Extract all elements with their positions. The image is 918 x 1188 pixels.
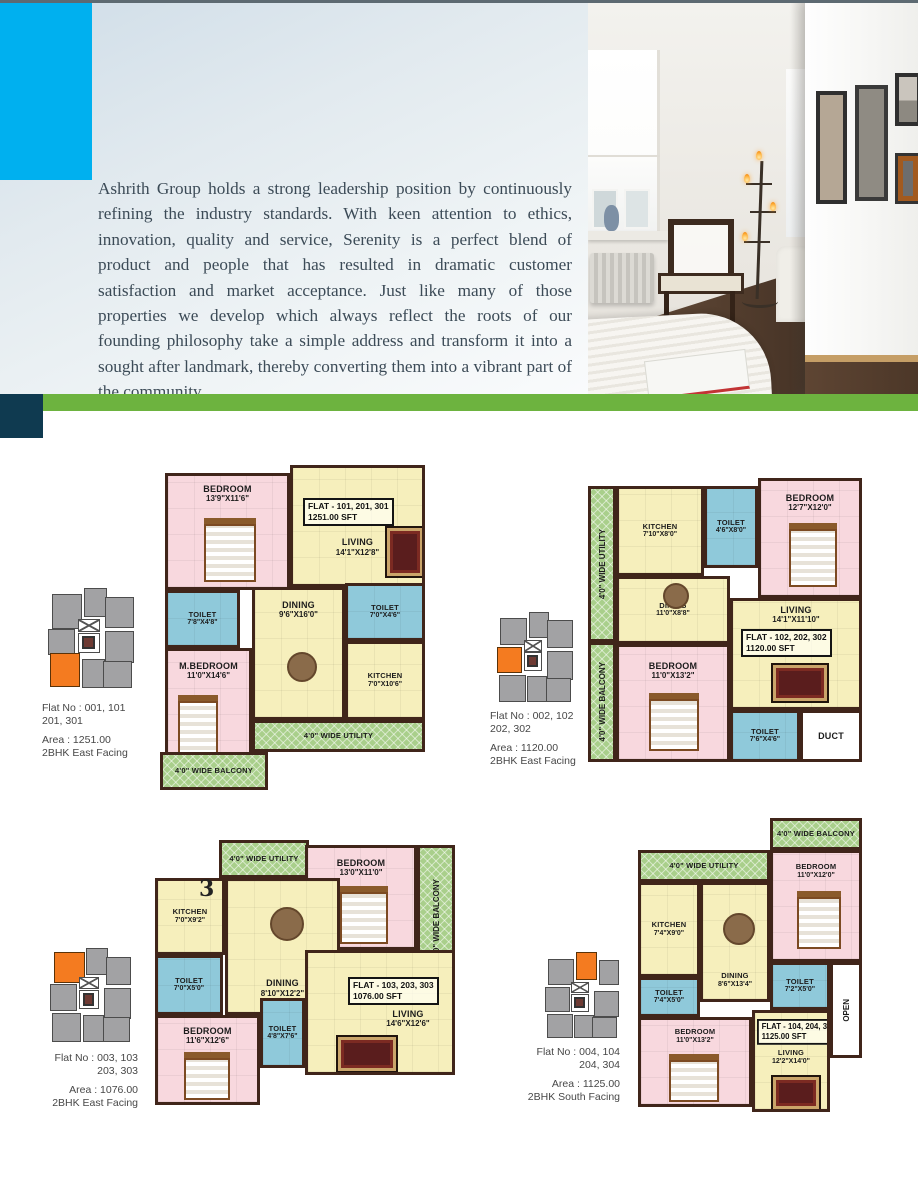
keyplan-flat-103	[45, 948, 135, 1044]
floorplan-flat-101: BEDROOM 13'9"X11'6" FLAT - 101, 201, 301…	[160, 465, 425, 790]
flat-no: 202, 302	[490, 723, 610, 736]
flat-no: 201, 301	[42, 715, 172, 728]
keyplan-flat-104	[540, 952, 622, 1040]
room-toilet: TOILET 7'8"X4'8"	[165, 590, 240, 648]
floorplan-flat-102: 4'0" WIDE UTILITY KITCHEN 7'10"X8'0" TOI…	[588, 478, 862, 762]
flat-facing: 2BHK South Facing	[510, 1091, 620, 1104]
room-toilet: TOILET 4'6"X8'0"	[704, 486, 758, 568]
room-toilet: TOILET 7'6"X4'6"	[730, 710, 800, 762]
floorplan-flat-104: 4'0" WIDE BALCONY 4'0" WIDE UTILITY BEDR…	[632, 818, 862, 1112]
room-balcony: 4'0" WIDE BALCONY	[160, 752, 268, 790]
flat-no: Flat No : 003, 103	[28, 1052, 138, 1065]
room-kitchen: KITCHEN 7'0"X10'6"	[345, 641, 425, 720]
room-dining: DINING 11'0"X8'8"	[616, 576, 730, 644]
room-open: OPEN	[830, 962, 862, 1058]
photo-candle-arm	[746, 183, 772, 185]
cyan-accent-block	[0, 3, 92, 180]
picture-frame	[816, 91, 847, 204]
flat-facing: 2BHK East Facing	[490, 755, 610, 768]
lift-icon	[527, 655, 538, 667]
room-bedroom: BEDROOM 11'0"X13'2"	[638, 1017, 752, 1107]
room-utility: 4'0" WIDE UTILITY	[219, 840, 309, 878]
room-living: FLAT - 104, 204, 304 1125.00 SFT LIVING …	[752, 1010, 830, 1112]
candle-flame	[756, 151, 762, 160]
bed-icon	[649, 699, 699, 751]
room-kitchen: KITCHEN 7'10"X8'0"	[616, 486, 704, 576]
photo-candle-arm	[744, 241, 770, 243]
photo-candle-arm	[750, 211, 776, 213]
room-kitchen: KITCHEN 7'4"X9'0"	[638, 882, 700, 977]
dining-table-icon	[270, 907, 304, 941]
flat-info-103: Flat No : 003, 103 203, 303 Area : 1076.…	[28, 1052, 138, 1109]
stairs-icon	[571, 982, 589, 993]
bed-icon	[184, 1058, 230, 1100]
room-duct: DUCT	[800, 710, 862, 762]
brochure-page: Ashrith Group holds a strong leadership …	[0, 0, 918, 1188]
navy-accent-block	[0, 394, 43, 438]
room-kitchen: KITCHEN 7'0"X9'2"	[155, 878, 225, 955]
room-bedroom: BEDROOM 11'0"X13'2"	[616, 644, 730, 762]
flat-number-box: FLAT - 101, 201, 301 1251.00 SFT	[303, 498, 394, 526]
flat-area: Area : 1251.00	[42, 734, 172, 747]
photo-radiator	[590, 253, 654, 303]
flat-number-box: FLAT - 103, 203, 303 1076.00 SFT	[348, 977, 439, 1005]
photo-vase	[604, 205, 619, 231]
flat-no: 203, 303	[28, 1065, 138, 1078]
flat-area: Area : 1076.00	[28, 1084, 138, 1097]
page-number-artifact: 3	[199, 876, 214, 902]
picture-frame	[895, 153, 918, 204]
keyplan-flat-102	[492, 612, 576, 704]
room-living: FLAT - 101, 201, 301 1251.00 SFT LIVING …	[290, 465, 425, 587]
room-bedroom: BEDROOM 11'6"X12'6"	[155, 1015, 260, 1105]
rug-icon	[336, 1035, 398, 1073]
stairs-icon	[79, 977, 99, 989]
keyplan-flat-101	[42, 588, 138, 690]
dining-table-icon	[663, 583, 689, 609]
room-toilet: TOILET 7'0"X5'0"	[155, 955, 223, 1015]
bed-icon	[789, 529, 837, 587]
candle-flame	[742, 232, 748, 241]
floorplan-flat-103: 4'0" WIDE UTILITY BEDROOM 13'0"X11'0" 4'…	[147, 840, 462, 1105]
flat-info-101: Flat No : 001, 101 201, 301 Area : 1251.…	[42, 702, 172, 759]
photo-window-sill	[588, 231, 668, 240]
room-utility: 4'0" WIDE UTILITY	[638, 850, 770, 882]
rug-icon	[385, 526, 425, 578]
flat-number-box: FLAT - 102, 202, 302 1120.00 SFT	[741, 629, 832, 657]
flat-facing: 2BHK East Facing	[42, 747, 172, 760]
room-toilet: TOILET 7'0"X4'6"	[345, 583, 425, 641]
room-balcony: 4'0" WIDE BALCONY	[770, 818, 862, 850]
flat-facing: 2BHK East Facing	[28, 1097, 138, 1110]
room-bedroom: BEDROOM 11'0"X12'0"	[770, 850, 862, 962]
highlighted-unit	[50, 653, 81, 687]
room-living: FLAT - 103, 203, 303 1076.00 SFT LIVING …	[305, 950, 455, 1075]
picture-frame	[895, 73, 918, 126]
candle-flame	[744, 174, 750, 183]
flat-no: Flat No : 002, 102	[490, 710, 610, 723]
flat-no: Flat No : 001, 101	[42, 702, 172, 715]
room-dining: DINING 8'6"X13'4"	[700, 882, 770, 1002]
bed-icon	[340, 892, 388, 944]
room-toilet: TOILET 7'4"X5'0"	[638, 977, 700, 1017]
highlighted-unit	[576, 952, 597, 980]
photo-window-pane	[624, 189, 650, 229]
rug-icon	[771, 663, 829, 703]
lift-icon	[574, 997, 585, 1008]
photo-candle-base	[742, 295, 778, 308]
stairs-icon	[524, 640, 542, 652]
bed-icon	[797, 897, 841, 949]
flat-area: Area : 1120.00	[490, 742, 610, 755]
room-toilet: TOILET 7'2"X5'0"	[770, 962, 830, 1010]
picture-frame	[855, 85, 888, 201]
room-bedroom: BEDROOM 12'7"X12'0"	[758, 478, 862, 598]
room-utility: 4'0" WIDE UTILITY	[252, 720, 425, 752]
room-toilet: TOILET 4'8"X7'6"	[260, 998, 305, 1068]
photo-blind-edge	[588, 155, 660, 157]
photo-wall-corner-shadow	[790, 3, 806, 394]
room-bedroom: BEDROOM 13'9"X11'6"	[165, 473, 290, 590]
flat-info-104: Flat No : 004, 104 204, 304 Area : 1125.…	[510, 1046, 620, 1103]
rug-icon	[771, 1075, 821, 1111]
bed-icon	[669, 1060, 719, 1102]
flat-info-102: Flat No : 002, 102 202, 302 Area : 1120.…	[490, 710, 610, 767]
green-stripe	[43, 394, 918, 411]
lift-icon	[82, 636, 94, 649]
stairs-icon	[78, 619, 99, 632]
room-utility: 4'0" WIDE UTILITY	[588, 486, 616, 642]
bed-icon	[204, 524, 256, 582]
dining-table-icon	[287, 652, 317, 682]
flat-area: Area : 1125.00	[510, 1078, 620, 1091]
candle-flame	[770, 202, 776, 211]
lift-icon	[83, 993, 95, 1005]
photo-floor	[805, 362, 918, 394]
room-living: LIVING 14'1"X11'10" FLAT - 102, 202, 302…	[730, 598, 862, 710]
highlighted-unit	[497, 647, 522, 673]
flat-no: Flat No : 004, 104	[510, 1046, 620, 1059]
room-dining: DINING 9'6"X16'0"	[252, 587, 345, 720]
flat-number-box: FLAT - 104, 204, 304 1125.00 SFT	[757, 1019, 830, 1045]
intro-paragraph: Ashrith Group holds a strong leadership …	[98, 176, 572, 405]
photo-baseboard	[805, 355, 918, 362]
flat-no: 204, 304	[510, 1059, 620, 1072]
bed-icon	[178, 701, 218, 756]
dining-table-icon	[723, 913, 755, 945]
interior-photo	[588, 3, 918, 394]
